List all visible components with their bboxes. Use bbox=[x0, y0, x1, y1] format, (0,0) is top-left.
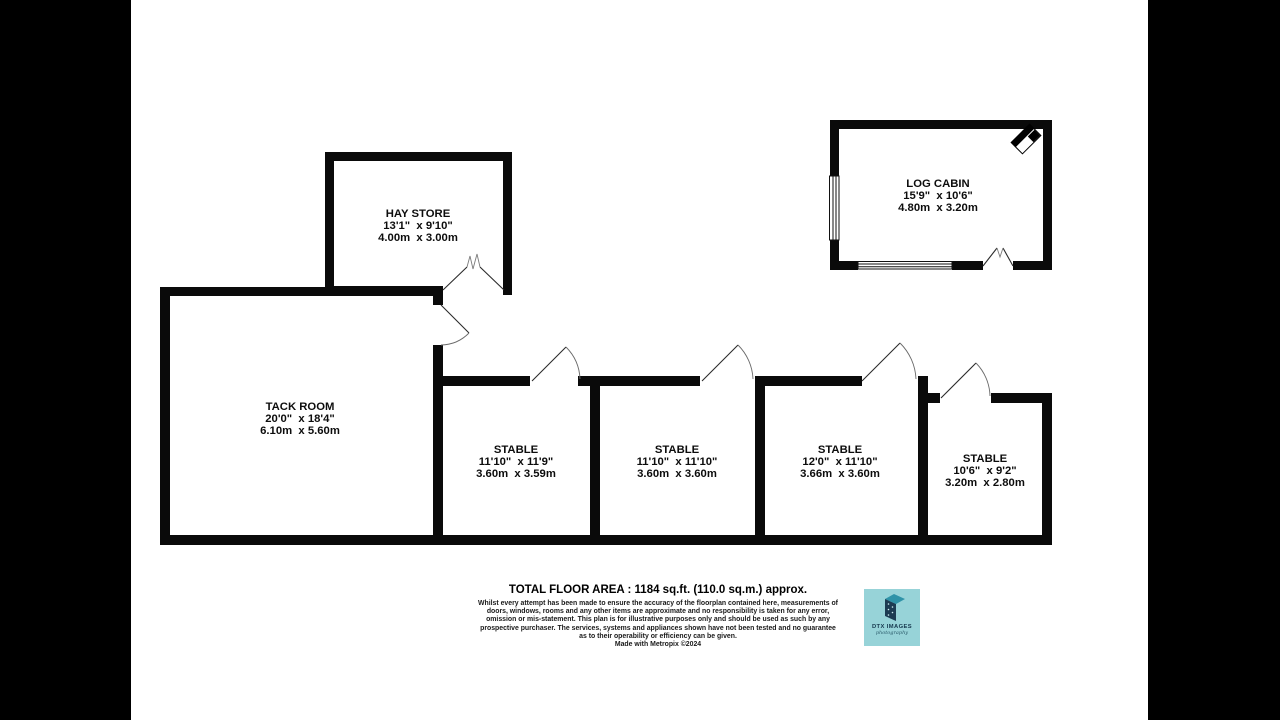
room-name: STABLE bbox=[818, 444, 863, 456]
wall bbox=[1043, 120, 1052, 268]
disclaimer-text: Whilst every attempt has been made to en… bbox=[476, 600, 840, 641]
room-dims-imperial: 12'0" x 11'10" bbox=[802, 456, 877, 468]
door-meeting-squiggle bbox=[467, 254, 480, 269]
room-name: STABLE bbox=[655, 444, 700, 456]
wall bbox=[830, 261, 858, 270]
room-name: HAY STORE bbox=[386, 208, 451, 220]
door-swing-arc bbox=[566, 347, 580, 379]
dtx-images-logo: DTX IMAGES photography bbox=[864, 589, 920, 646]
door-swing-arc bbox=[738, 345, 753, 379]
wall bbox=[600, 376, 700, 386]
stables-block: STABLE 11'10" x 11'9" 3.60m x 3.59m STAB… bbox=[160, 343, 1052, 545]
room-dims-imperial: 11'10" x 11'9" bbox=[479, 456, 554, 468]
room-label-stable-1: STABLE 11'10" x 11'9" 3.60m x 3.59m bbox=[476, 444, 556, 480]
room-name: STABLE bbox=[494, 444, 539, 456]
door-leaf bbox=[441, 305, 469, 333]
room-dims-metric: 3.66m x 3.60m bbox=[800, 468, 880, 480]
window-icon bbox=[858, 260, 952, 271]
door-icon bbox=[532, 347, 580, 381]
room-dims-imperial: 10'6" x 9'2" bbox=[953, 465, 1016, 477]
window-icon bbox=[828, 176, 840, 240]
door-leaf bbox=[983, 248, 997, 266]
logo-dot bbox=[888, 603, 890, 605]
room-label-stable-2: STABLE 11'10" x 11'10" 3.60m x 3.60m bbox=[637, 444, 718, 480]
wall bbox=[952, 261, 983, 270]
room-name: LOG CABIN bbox=[906, 178, 969, 190]
room-name: STABLE bbox=[963, 453, 1008, 465]
wall bbox=[590, 376, 600, 545]
logo-dot bbox=[892, 612, 894, 614]
wall bbox=[325, 152, 334, 295]
wall bbox=[1042, 393, 1052, 545]
total-floor-area-text: TOTAL FLOOR AREA : 1184 sq.ft. (110.0 sq… bbox=[458, 584, 858, 596]
logo-subtitle: photography bbox=[876, 630, 908, 636]
door-swing-arc bbox=[976, 363, 990, 396]
wall bbox=[160, 287, 170, 545]
wall bbox=[433, 345, 443, 545]
room-dims-metric: 3.60m x 3.60m bbox=[637, 468, 717, 480]
door-icon bbox=[862, 343, 916, 381]
room-dims-metric: 3.20m x 2.80m bbox=[945, 477, 1025, 489]
wall bbox=[325, 152, 512, 161]
wall bbox=[503, 152, 512, 295]
wall bbox=[928, 393, 940, 403]
room-dims-metric: 6.10m x 5.60m bbox=[260, 425, 340, 437]
room-label-stable-4: STABLE 10'6" x 9'2" 3.20m x 2.80m bbox=[945, 453, 1025, 489]
door-icon bbox=[702, 345, 753, 381]
room-dims-imperial: 11'10" x 11'10" bbox=[637, 456, 718, 468]
wall bbox=[160, 287, 443, 296]
door-leaf bbox=[1003, 248, 1013, 266]
door-leaf bbox=[480, 267, 504, 290]
wall bbox=[1013, 261, 1052, 270]
door-swing-arc bbox=[441, 333, 469, 345]
wall bbox=[433, 376, 530, 386]
door-leaf bbox=[702, 345, 738, 381]
door-leaf bbox=[532, 347, 566, 381]
room-dims-imperial: 20'0" x 18'4" bbox=[265, 413, 334, 425]
room-dims-metric: 4.00m x 3.00m bbox=[378, 232, 458, 244]
door-leaf bbox=[941, 363, 976, 398]
door-icon bbox=[941, 363, 990, 398]
door-icon bbox=[441, 305, 469, 345]
room-label-tack-room: TACK ROOM 20'0" x 18'4" 6.10m x 5.60m bbox=[260, 401, 340, 437]
room-label-log-cabin: LOG CABIN 15'9" x 10'6" 4.80m x 3.20m bbox=[898, 178, 978, 214]
room-label-stable-3: STABLE 12'0" x 11'10" 3.66m x 3.60m bbox=[800, 444, 880, 480]
door-leaf bbox=[443, 267, 467, 290]
double-door-icon bbox=[983, 248, 1013, 266]
logo-dot bbox=[892, 606, 894, 608]
wall bbox=[830, 120, 1052, 129]
logo-dot bbox=[888, 614, 890, 616]
metropix-credit-text: Made with Metropix ©2024 bbox=[476, 641, 840, 649]
double-door-icon bbox=[443, 254, 504, 290]
door-leaf bbox=[862, 343, 900, 381]
wall bbox=[918, 376, 928, 545]
floorplan-page: HAY STORE 13'1" x 9'10" 4.00m x 3.00m bbox=[0, 0, 1280, 720]
room-label-hay-store: HAY STORE 13'1" x 9'10" 4.00m x 3.00m bbox=[378, 208, 458, 244]
door-meeting-squiggle bbox=[997, 248, 1003, 257]
wall bbox=[765, 376, 862, 386]
door-swing-arc bbox=[900, 343, 916, 379]
disclaimer-block: Whilst every attempt has been made to en… bbox=[476, 600, 840, 649]
wall bbox=[755, 376, 765, 545]
room-log-cabin: LOG CABIN 15'9" x 10'6" 4.80m x 3.20m bbox=[828, 120, 1052, 271]
room-hay-store: HAY STORE 13'1" x 9'10" 4.00m x 3.00m bbox=[325, 152, 512, 305]
room-dims-metric: 4.80m x 3.20m bbox=[898, 202, 978, 214]
room-dims-metric: 3.60m x 3.59m bbox=[476, 468, 556, 480]
logo-dot bbox=[888, 609, 890, 611]
room-tack-room: TACK ROOM 20'0" x 18'4" 6.10m x 5.60m bbox=[160, 287, 469, 545]
logo-monolith-icon bbox=[876, 589, 908, 623]
room-name: TACK ROOM bbox=[266, 401, 335, 413]
room-dims-imperial: 15'9" x 10'6" bbox=[903, 190, 972, 202]
room-dims-imperial: 13'1" x 9'10" bbox=[383, 220, 452, 232]
